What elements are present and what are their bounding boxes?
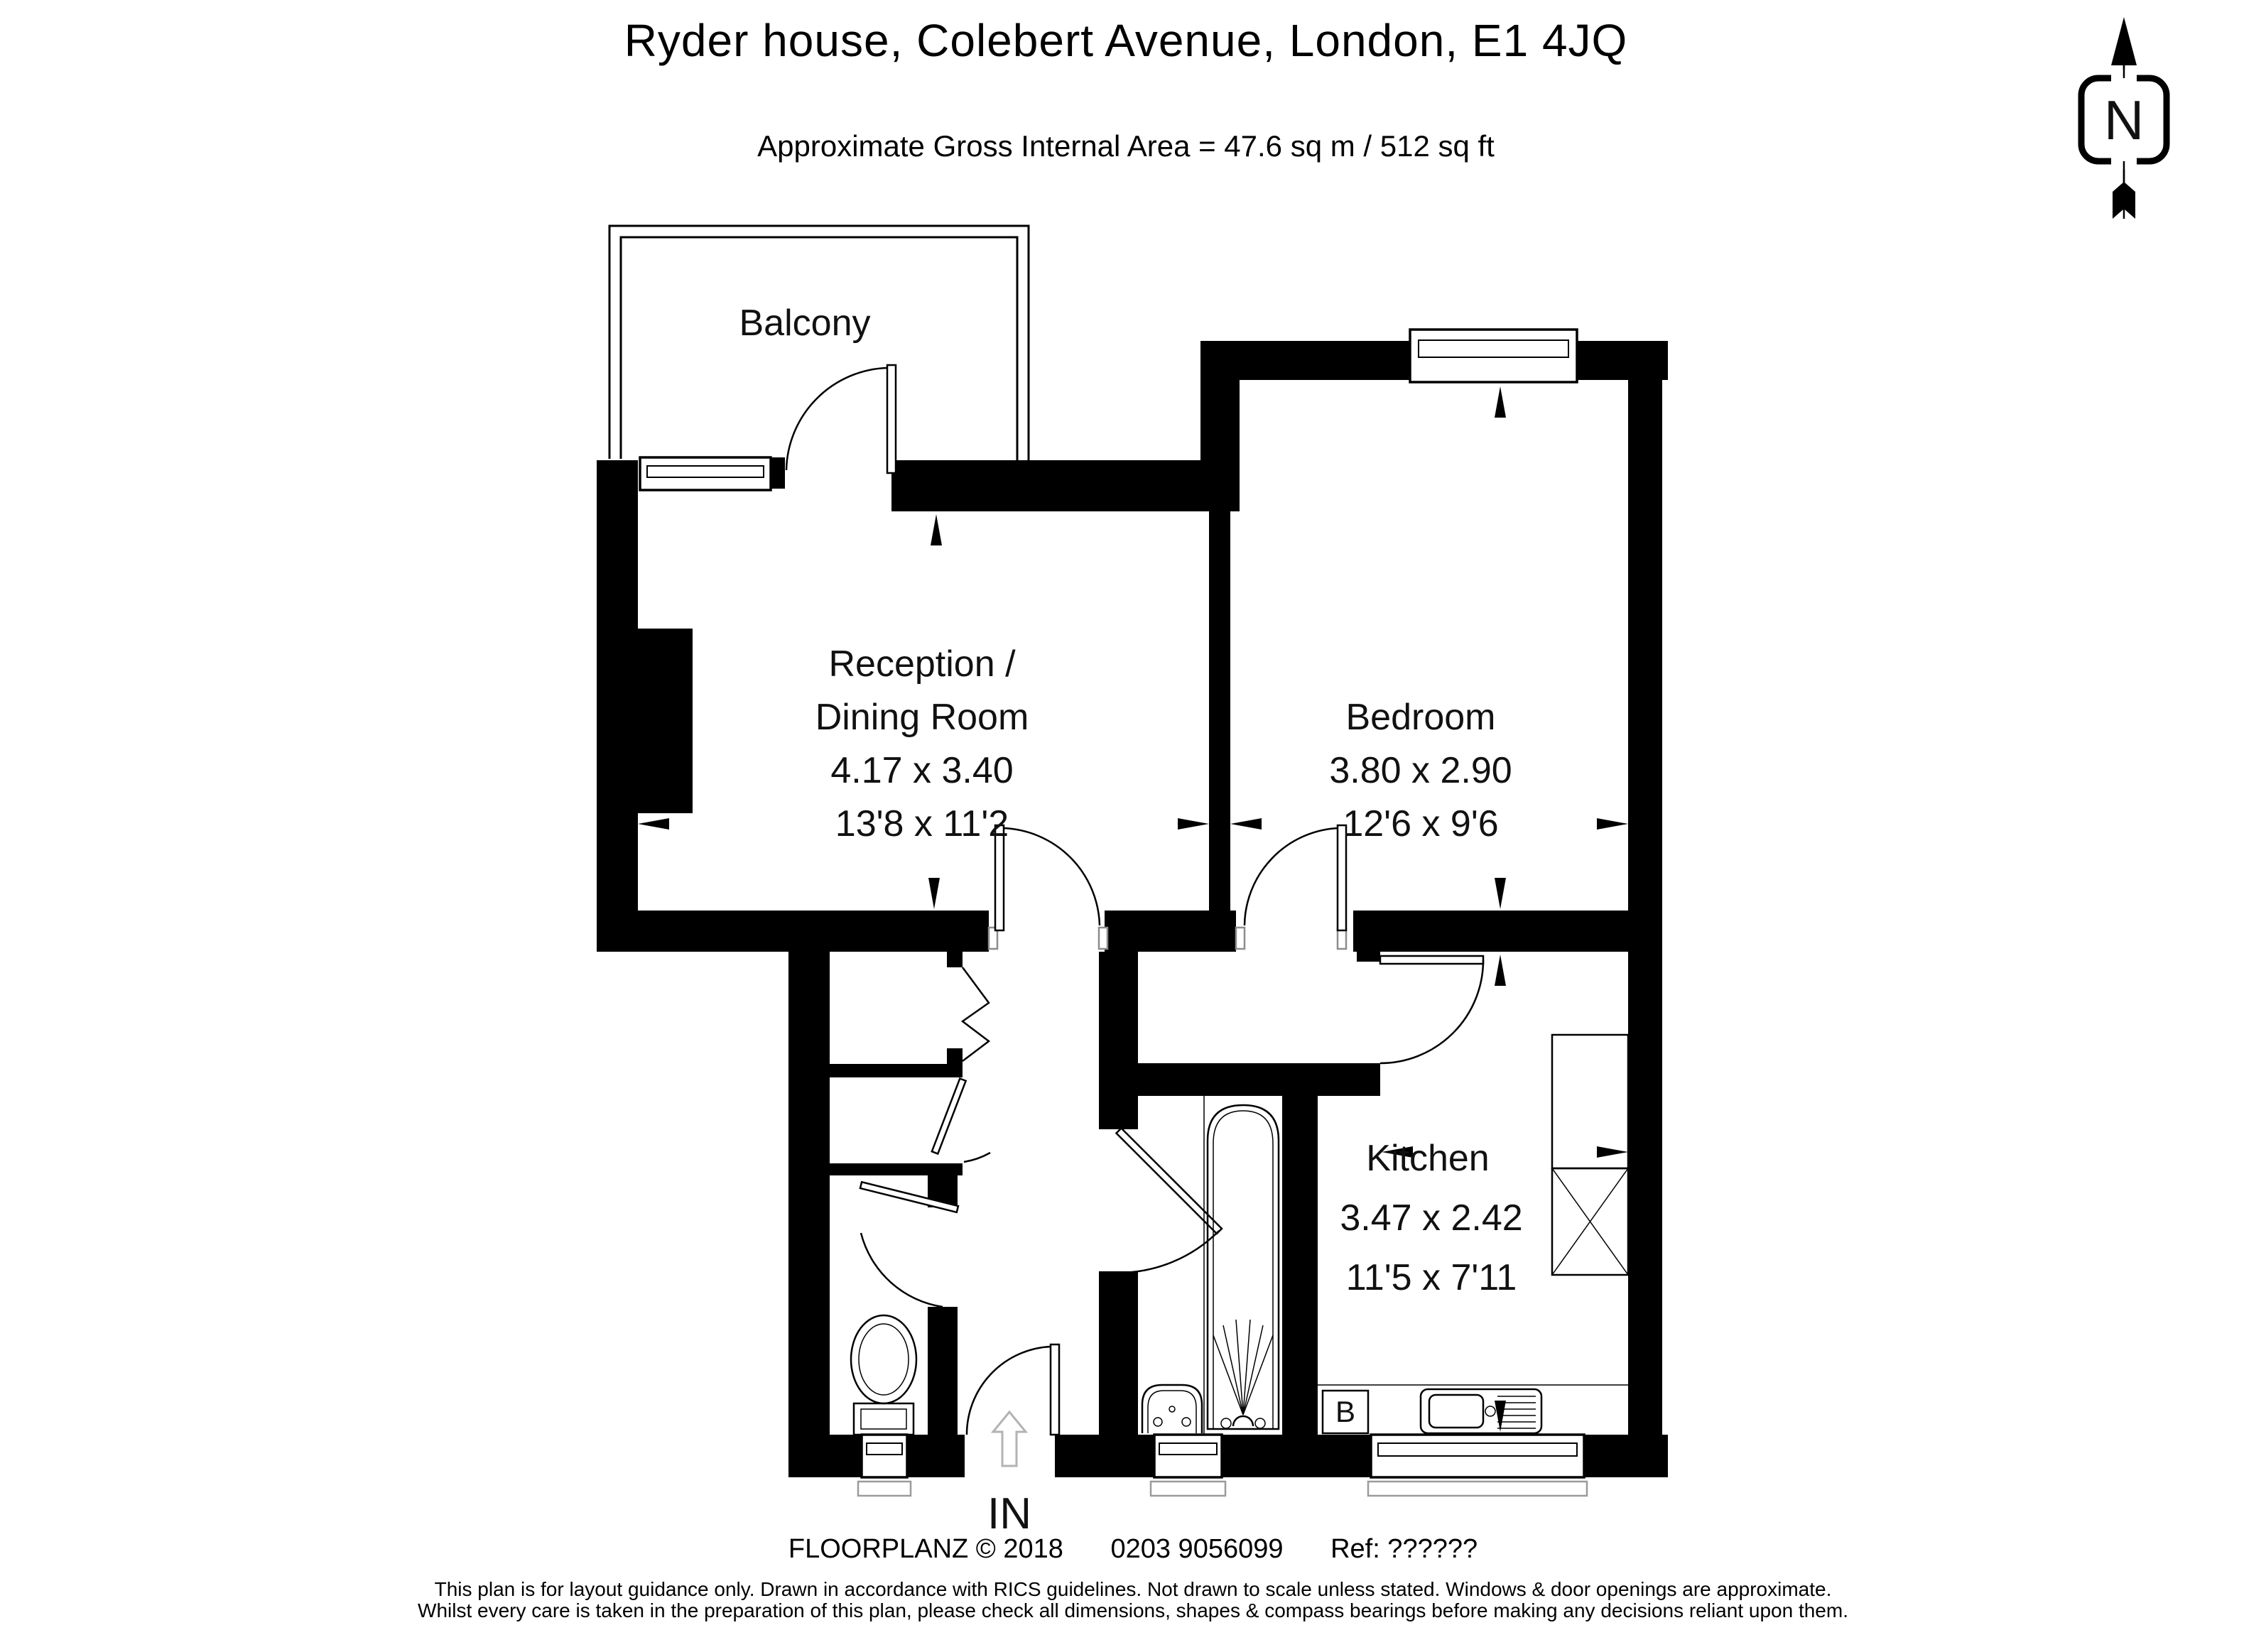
entrance-door-leaf: [1051, 1344, 1059, 1435]
wc-window-frame: [862, 1435, 907, 1477]
footer-credit: FLOORPLANZ © 2018 0203 9056099 Ref: ????…: [0, 1534, 2266, 1565]
bedroom-window: [1410, 330, 1577, 382]
wall-reception-bedroom-divider: [1209, 511, 1230, 911]
reception-door-swing: [1004, 828, 1100, 925]
reception-label-line2: Dining Room: [815, 697, 1029, 738]
kitchen-window-glazing: [1378, 1443, 1577, 1456]
bathtub-control-left: [1221, 1418, 1231, 1428]
kitchen-sink-bowl: [1429, 1395, 1483, 1428]
wall-bathroom-kitchen-divider: [1282, 1096, 1318, 1435]
wall-bottom-seg1: [788, 1435, 862, 1477]
kitchen-tall-unit: [1552, 1035, 1628, 1168]
wc-fixtures: [851, 1315, 916, 1435]
wall-closet-divider1: [830, 1064, 963, 1077]
bathtub-shower-spray: [1213, 1320, 1273, 1415]
kitchen-door-swing: [1380, 960, 1483, 1063]
bathroom-window-frame: [1154, 1435, 1222, 1477]
wall-closet-stub-bottom: [947, 1048, 963, 1064]
kitchen-label: Kitchen: [1366, 1138, 1489, 1179]
bedroom-dim-arrow-down: [1495, 878, 1506, 909]
bathroom-sink-tap-right: [1182, 1418, 1191, 1426]
closet-bifold-door: [963, 967, 989, 1061]
reception-dim-arrow-down: [928, 878, 940, 909]
reception-door-jamb-right: [1099, 928, 1107, 949]
kitchen-door: [1380, 956, 1483, 1063]
bathroom-window-glazing: [1159, 1443, 1217, 1455]
toilet-cistern-inner: [861, 1409, 906, 1429]
footer-disclaimer-line2: Whilst every care is taken in the prepar…: [0, 1599, 2266, 1622]
kitchen-dim-arrow-up: [1495, 955, 1506, 986]
kitchen-appliance-box: [1552, 1168, 1628, 1275]
bathroom-sink-outline: [1142, 1385, 1202, 1433]
bathroom-sink-drain: [1169, 1406, 1175, 1412]
wall-hall-left: [788, 952, 830, 1477]
walls: [597, 341, 1668, 1477]
wall-bathroom-top: [1099, 1063, 1380, 1096]
compass-north-label: N: [2104, 89, 2144, 151]
balcony-window: [640, 457, 771, 490]
wall-closet-divider2: [830, 1163, 963, 1175]
wall-bottom-seg3: [1055, 1435, 1154, 1477]
kitchen-dim-metric: 3.47 x 2.42: [1340, 1197, 1522, 1239]
bathtub-outline: [1208, 1105, 1279, 1429]
reception-dim-arrow-up: [931, 514, 942, 545]
wall-reception-top: [891, 460, 1240, 511]
reception-dim-metric: 4.17 x 3.40: [830, 750, 1013, 791]
floor-plan: N: [0, 0, 2266, 1652]
bathtub-inner: [1213, 1111, 1273, 1429]
bathroom-door: [1116, 1128, 1221, 1273]
bedroom-dim-arrow-left: [1230, 818, 1262, 830]
wall-right-exterior: [1628, 341, 1662, 1477]
bedroom-door-swing: [1245, 828, 1338, 925]
bedroom-dim-arrow-right: [1597, 818, 1628, 830]
kitchen-window-sill: [1368, 1482, 1587, 1496]
balcony-door-swing: [786, 368, 887, 470]
bathroom-sink-tap-left: [1154, 1418, 1162, 1426]
compass-north-indicator: N: [2081, 17, 2167, 219]
closet2-door: [932, 1079, 990, 1162]
kitchen-sink: [1421, 1389, 1541, 1433]
closet2-door-swing: [964, 1153, 990, 1162]
entrance-arrow-icon: [993, 1412, 1026, 1466]
kitchen-dim-arrow-down: [1495, 1401, 1506, 1432]
wc-window-sill: [858, 1482, 911, 1496]
entrance-marker: IN: [987, 1412, 1031, 1538]
footer-brand: FLOORPLANZ © 2018: [788, 1534, 1063, 1564]
wall-bottom-seg4: [1222, 1435, 1371, 1477]
boiler-label: B: [1335, 1395, 1355, 1428]
bathroom-window: [1151, 1435, 1225, 1496]
wall-bottom-band-left: [597, 911, 989, 952]
wall-reception-pier: [638, 629, 693, 813]
toilet-cistern: [854, 1403, 914, 1435]
closet2-door-leaf: [932, 1079, 966, 1154]
balcony-door: [786, 365, 896, 473]
kitchen-door-leaf: [1380, 956, 1483, 964]
kitchen-dim-imperial: 11'5 x 7'11: [1346, 1257, 1517, 1298]
wall-kitchen-door-stub: [1357, 952, 1380, 962]
wall-bathroom-left-upper: [1099, 952, 1138, 1129]
toilet-bowl-outer: [851, 1315, 916, 1403]
wall-left-exterior: [597, 460, 638, 911]
bedroom-window-glazing: [1419, 340, 1568, 357]
wall-closet-stub-top: [947, 952, 963, 967]
bedroom-dim-arrow-up: [1495, 386, 1506, 418]
bedroom-dim-imperial: 12'6 x 9'6: [1343, 803, 1498, 844]
bathroom-window-sill: [1151, 1482, 1225, 1496]
kitchen-window: [1368, 1435, 1587, 1496]
kitchen-sink-tap: [1485, 1406, 1495, 1416]
bathtub-control-right: [1255, 1418, 1265, 1428]
balcony-label: Balcony: [739, 303, 871, 344]
toilet-bowl-inner: [859, 1324, 909, 1395]
entrance-label: IN: [987, 1489, 1031, 1538]
bedroom-door: [1236, 825, 1346, 949]
wall-bottom-band-mid: [1105, 911, 1236, 952]
bedroom-door-jamb-left: [1236, 928, 1245, 949]
balcony-inner-wall: [621, 237, 1017, 460]
wc-window: [858, 1435, 911, 1496]
footer-phone: 0203 9056099: [1110, 1534, 1283, 1564]
reception-dim-imperial: 13'8 x 11'2: [835, 803, 1009, 844]
reception-label-line1: Reception /: [828, 643, 1016, 685]
floorplan-page: Ryder house, Colebert Avenue, London, E1…: [0, 0, 2266, 1652]
wall-bottom-seg2: [907, 1435, 965, 1477]
footer-disclaimer-line1: This plan is for layout guidance only. D…: [0, 1578, 2266, 1601]
wall-bottom-seg5: [1584, 1435, 1668, 1477]
wc-door-swing: [861, 1233, 943, 1307]
wall-wc-right-lower: [928, 1307, 958, 1435]
bathroom-door-leaf: [1116, 1128, 1221, 1233]
reception-dim-arrow-right: [1178, 818, 1209, 830]
kitchen-dim-arrow-right: [1597, 1146, 1628, 1158]
wall-bathroom-left-lower: [1099, 1271, 1138, 1435]
wall-bottom-band-right: [1353, 911, 1628, 952]
balcony-window-glazing: [647, 466, 764, 477]
wall-balcony-door-jamb: [771, 457, 785, 489]
footer-ref: Ref: ??????: [1330, 1534, 1478, 1564]
bedroom-label: Bedroom: [1346, 697, 1496, 738]
balcony-door-leaf: [887, 365, 896, 473]
bedroom-dim-metric: 3.80 x 2.90: [1329, 750, 1512, 791]
reception-dim-arrow-left: [638, 818, 669, 830]
wc-window-glazing: [867, 1443, 902, 1455]
bathtub-tap-icon: [1233, 1416, 1253, 1426]
